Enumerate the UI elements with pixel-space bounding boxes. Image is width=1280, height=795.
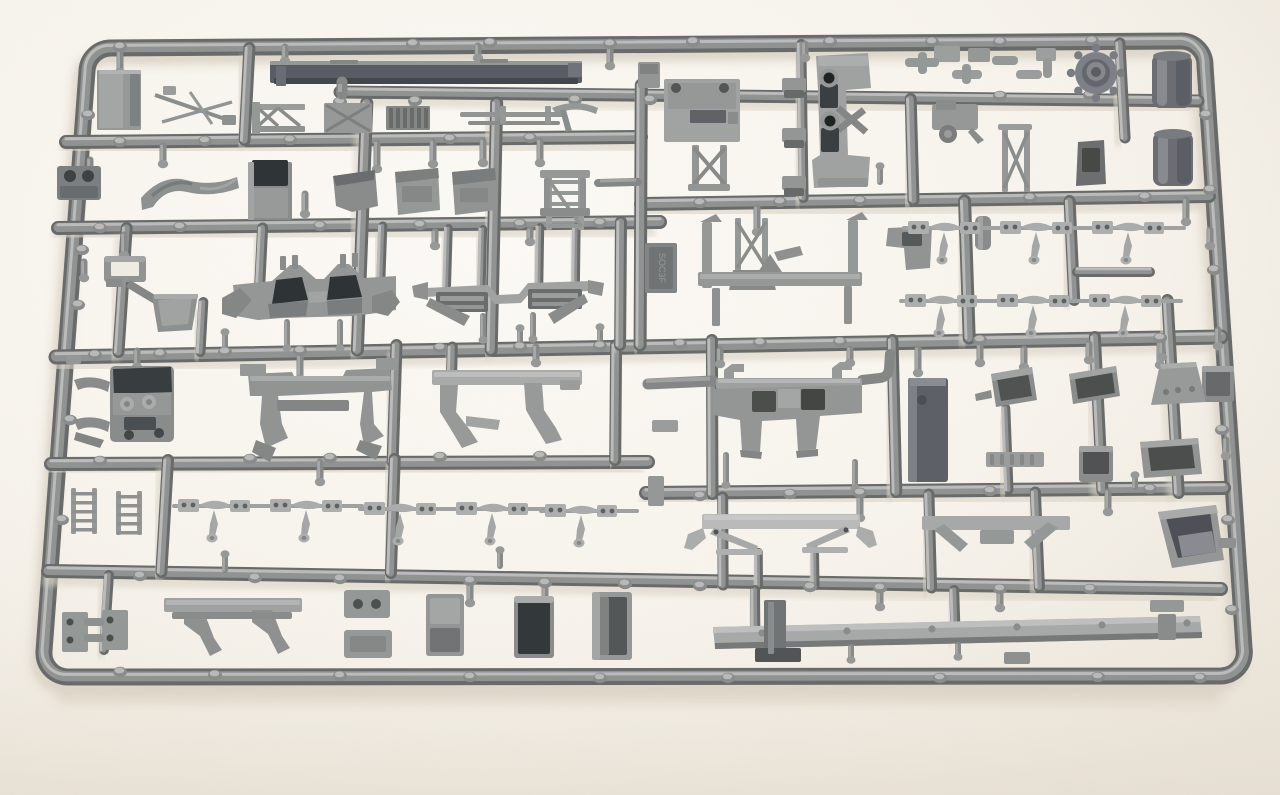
svg-text:SOC3F: SOC3F (657, 253, 667, 284)
